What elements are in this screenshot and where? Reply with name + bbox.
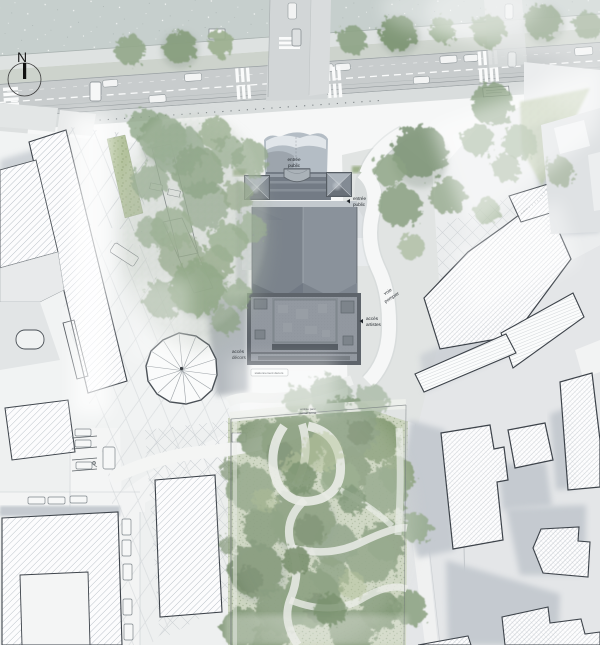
svg-text:N: N (17, 49, 27, 65)
svg-text:accès: accès (366, 316, 379, 321)
svg-text:entrée: entrée (353, 196, 366, 201)
svg-text:artistes: artistes (366, 322, 382, 327)
svg-text:entrée: entrée (287, 157, 300, 162)
svg-text:public: public (353, 202, 366, 207)
svg-text:public: public (288, 163, 301, 168)
svg-text:accès: accès (232, 349, 245, 354)
